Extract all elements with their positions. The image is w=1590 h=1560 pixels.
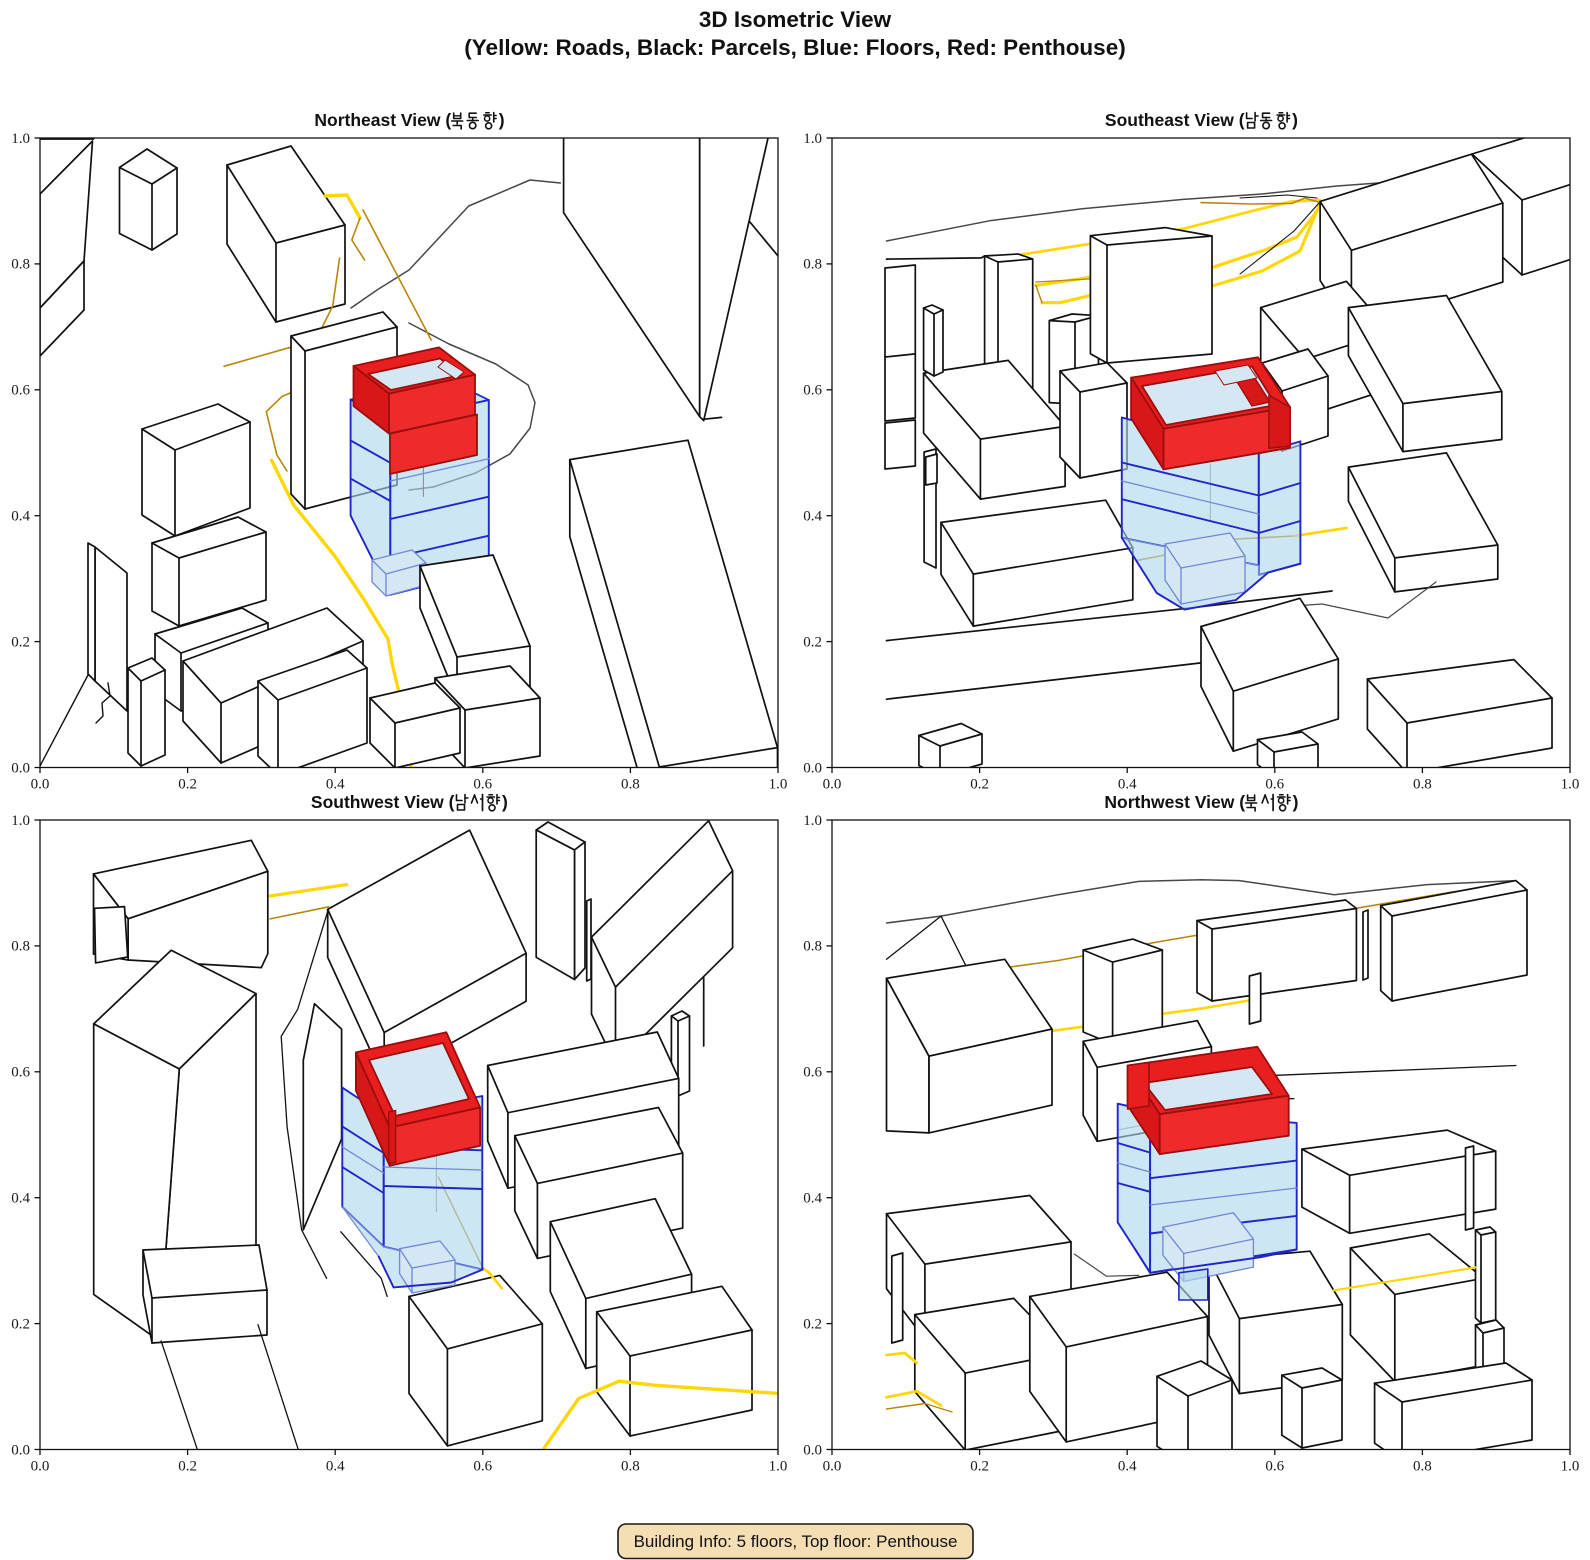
svg-text:Northwest View (: Northwest View ( [1104,792,1245,812]
svg-text:0.2: 0.2 [970,1459,989,1475]
svg-text:0.0: 0.0 [11,760,30,776]
svg-text:0.4: 0.4 [11,1191,30,1207]
svg-text:Southwest View (: Southwest View ( [311,792,455,812]
svg-text:0.0: 0.0 [823,777,842,793]
svg-text:0.0: 0.0 [31,777,50,793]
svg-text:0.0: 0.0 [31,1459,50,1475]
svg-text:): ) [1293,792,1299,812]
svg-text:1.0: 1.0 [769,777,788,793]
svg-text:): ) [502,792,508,812]
svg-text:1.0: 1.0 [803,131,822,147]
svg-text:): ) [499,110,505,130]
svg-text:1.0: 1.0 [1561,1459,1580,1475]
svg-text:): ) [1292,110,1298,130]
svg-text:0.6: 0.6 [803,1065,822,1081]
svg-text:0.4: 0.4 [11,509,30,525]
svg-text:3D Isometric View: 3D Isometric View [699,7,892,32]
svg-text:0.4: 0.4 [326,777,345,793]
svg-text:0.2: 0.2 [803,634,822,650]
svg-text:1.0: 1.0 [803,813,822,829]
svg-text:Northeast View (: Northeast View ( [314,110,451,130]
svg-text:1.0: 1.0 [769,1459,788,1475]
svg-text:0.6: 0.6 [473,1459,492,1475]
svg-text:0.6: 0.6 [803,383,822,399]
svg-text:0.8: 0.8 [11,257,30,273]
svg-text:0.8: 0.8 [803,257,822,273]
svg-text:0.0: 0.0 [803,760,822,776]
svg-text:0.6: 0.6 [1265,1459,1284,1475]
svg-text:Southeast View (: Southeast View ( [1105,110,1245,130]
svg-text:0.2: 0.2 [178,777,197,793]
svg-text:0.8: 0.8 [1413,1459,1432,1475]
svg-text:0.6: 0.6 [11,383,30,399]
svg-text:0.0: 0.0 [11,1442,30,1458]
svg-text:0.6: 0.6 [473,777,492,793]
svg-text:0.2: 0.2 [803,1316,822,1332]
svg-text:0.0: 0.0 [823,1459,842,1475]
svg-text:1.0: 1.0 [11,131,30,147]
svg-text:0.2: 0.2 [970,777,989,793]
svg-text:0.4: 0.4 [326,1459,345,1475]
svg-text:0.0: 0.0 [803,1442,822,1458]
svg-text:1.0: 1.0 [1561,777,1580,793]
svg-text:0.8: 0.8 [621,1459,640,1475]
svg-text:0.4: 0.4 [1118,777,1137,793]
svg-text:0.8: 0.8 [621,777,640,793]
svg-text:0.8: 0.8 [1413,777,1432,793]
svg-text:0.4: 0.4 [1118,1459,1137,1475]
svg-text:0.8: 0.8 [11,939,30,955]
svg-text:(Yellow: Roads, Black: Parcels: (Yellow: Roads, Black: Parcels, Blue: Fl… [464,35,1125,60]
svg-text:0.2: 0.2 [178,1459,197,1475]
svg-text:0.2: 0.2 [11,1316,30,1332]
svg-text:0.4: 0.4 [803,1191,822,1207]
svg-text:0.4: 0.4 [803,509,822,525]
svg-text:1.0: 1.0 [11,813,30,829]
svg-text:0.8: 0.8 [803,939,822,955]
svg-text:0.2: 0.2 [11,634,30,650]
svg-text:0.6: 0.6 [1265,777,1284,793]
svg-text:Building Info: 5 floors, Top f: Building Info: 5 floors, Top floor: Pent… [634,1532,958,1551]
svg-text:0.6: 0.6 [11,1065,30,1081]
